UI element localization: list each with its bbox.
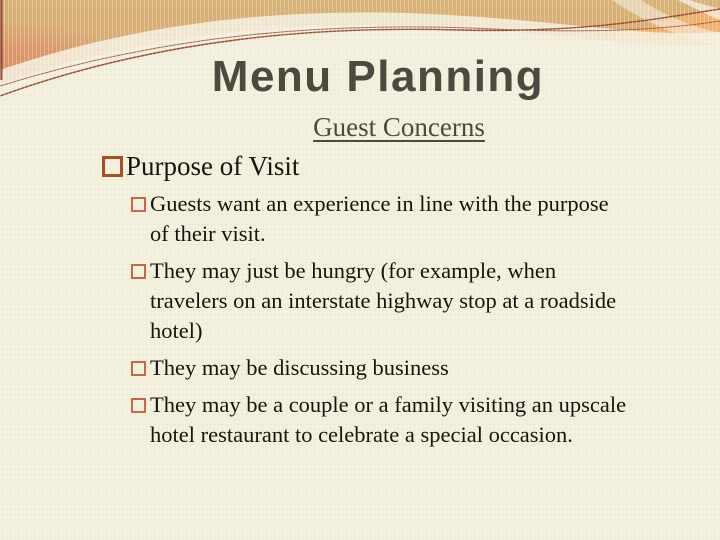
slide-body: Purpose of Visit Guests want an experien… <box>102 150 702 457</box>
bullet-item-level2: Guests want an experience in line with t… <box>131 189 702 249</box>
bullet-text: Purpose of Visit <box>126 150 299 182</box>
bullet-item-level2: They may just be hungry (for example, wh… <box>131 256 702 346</box>
square-bullet-icon <box>131 264 146 279</box>
square-bullet-icon <box>131 197 146 212</box>
square-bullet-icon <box>131 361 146 376</box>
bullet-item-level2: They may be a couple or a family visitin… <box>131 390 702 450</box>
slide-subtitle: Guest Concerns <box>78 112 720 143</box>
bullet-text: They may just be hungry (for example, wh… <box>150 256 616 346</box>
bullet-text: Guests want an experience in line with t… <box>150 189 609 249</box>
sub-bullet-list: Guests want an experience in line with t… <box>131 189 702 450</box>
bullet-item-level2: They may be discussing business <box>131 353 702 383</box>
bullet-text: They may be a couple or a family visitin… <box>150 390 626 450</box>
slide-title: Menu Planning <box>36 52 720 102</box>
presentation-slide: Menu Planning Guest Concerns Purpose of … <box>0 0 720 540</box>
square-bullet-icon <box>102 156 123 177</box>
square-bullet-icon <box>131 398 146 413</box>
slide-subtitle-text: Guest Concerns <box>313 112 485 142</box>
bullet-text: They may be discussing business <box>150 353 449 383</box>
left-edge-strip <box>0 0 3 80</box>
bullet-item-level1: Purpose of Visit <box>102 150 702 182</box>
